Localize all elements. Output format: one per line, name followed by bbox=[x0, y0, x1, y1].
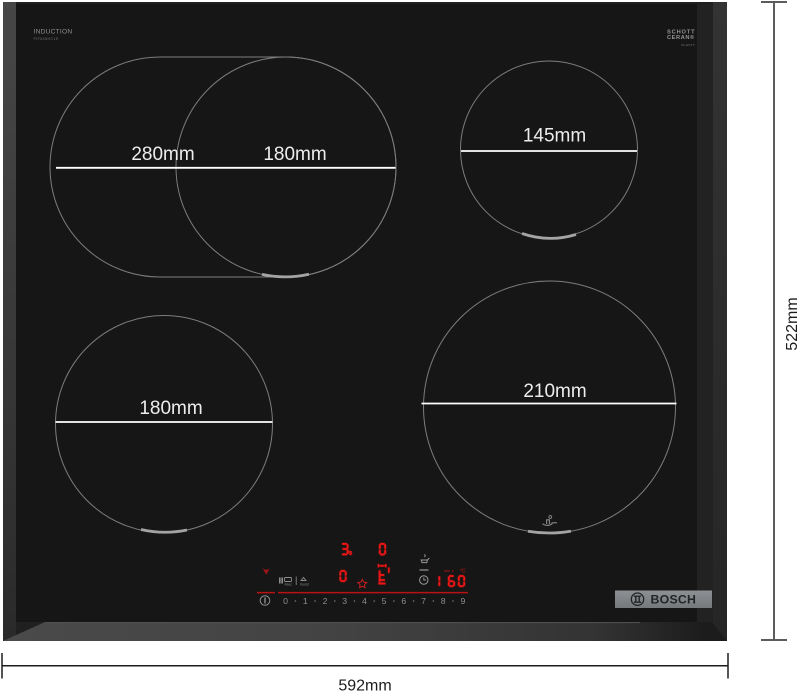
svg-text:3: 3 bbox=[342, 596, 347, 606]
svg-text:145mm: 145mm bbox=[523, 126, 586, 147]
svg-text:2: 2 bbox=[323, 596, 328, 606]
svg-text:280mm: 280mm bbox=[131, 144, 194, 165]
svg-text:min s: min s bbox=[444, 569, 454, 573]
svg-text:6: 6 bbox=[401, 596, 406, 606]
svg-text:592mm: 592mm bbox=[338, 678, 391, 692]
svg-text:5: 5 bbox=[382, 596, 387, 606]
svg-text:8: 8 bbox=[441, 596, 446, 606]
svg-text:boost: boost bbox=[300, 583, 309, 587]
svg-text:°C: °C bbox=[460, 569, 466, 575]
svg-text:7: 7 bbox=[421, 596, 426, 606]
svg-text:BOSCH: BOSCH bbox=[651, 593, 697, 607]
svg-text:180mm: 180mm bbox=[139, 398, 202, 419]
svg-text:INDUCTION: INDUCTION bbox=[34, 29, 73, 36]
svg-text:PIF645HC1E: PIF645HC1E bbox=[34, 37, 59, 41]
svg-text:0: 0 bbox=[283, 596, 288, 606]
svg-text:522mm: 522mm bbox=[784, 297, 800, 350]
svg-text:SCHOTT: SCHOTT bbox=[681, 43, 695, 47]
svg-text:4sec: 4sec bbox=[285, 583, 293, 587]
svg-text:1: 1 bbox=[303, 596, 308, 606]
svg-text:9: 9 bbox=[460, 596, 465, 606]
svg-text:4: 4 bbox=[362, 596, 367, 606]
svg-text:180mm: 180mm bbox=[263, 144, 326, 165]
svg-text:210mm: 210mm bbox=[523, 381, 586, 402]
svg-text:CERAN®: CERAN® bbox=[667, 34, 695, 41]
